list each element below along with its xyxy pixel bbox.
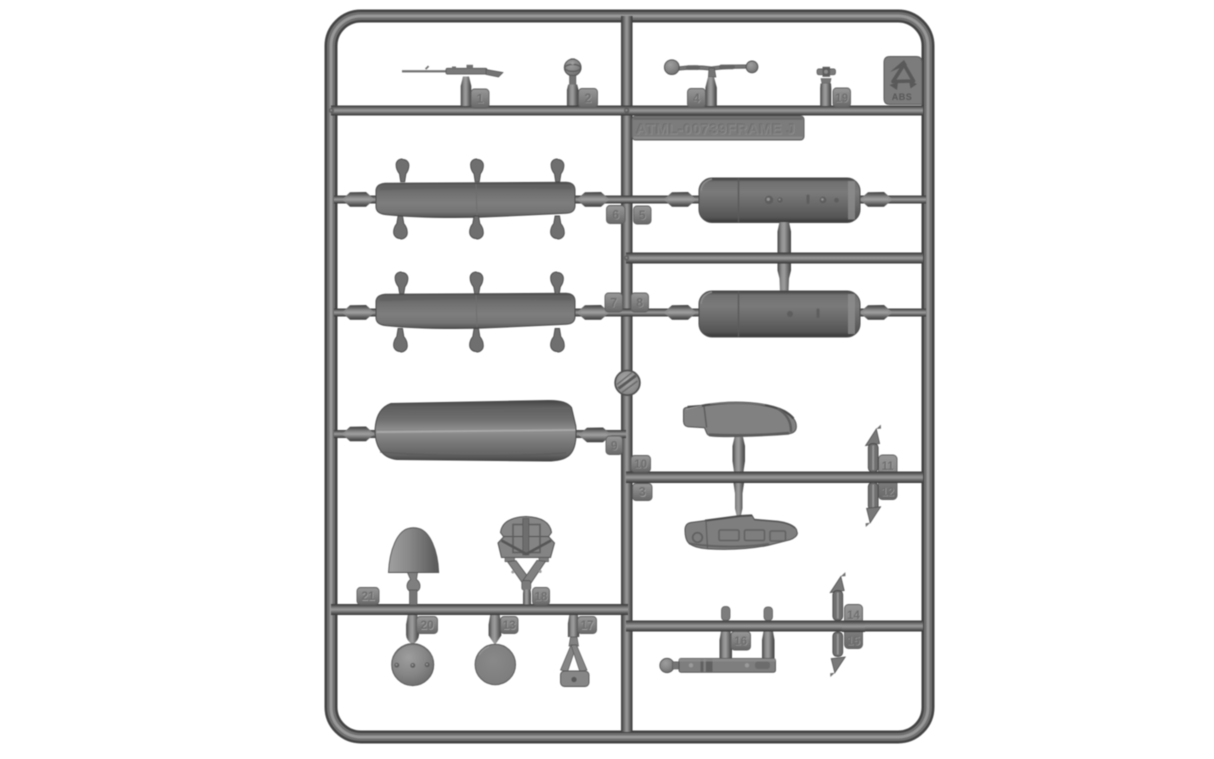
- svg-text:9: 9: [611, 439, 618, 453]
- svg-text:20: 20: [420, 618, 434, 632]
- svg-text:10: 10: [634, 459, 647, 471]
- svg-text:8: 8: [636, 296, 643, 310]
- svg-text:11: 11: [882, 461, 895, 473]
- svg-text:7: 7: [610, 296, 617, 310]
- svg-text:ABS: ABS: [892, 92, 913, 102]
- svg-text:ATML-00739FRAME J: ATML-00739FRAME J: [636, 121, 795, 138]
- svg-text:16: 16: [734, 636, 747, 648]
- svg-text:3: 3: [639, 485, 646, 499]
- svg-text:18: 18: [535, 592, 548, 604]
- svg-text:15: 15: [847, 636, 860, 648]
- svg-text:6: 6: [612, 208, 619, 222]
- svg-text:21: 21: [361, 589, 375, 603]
- svg-text:12: 12: [881, 487, 894, 499]
- svg-text:1: 1: [477, 92, 484, 106]
- svg-text:14: 14: [847, 610, 860, 622]
- svg-text:2: 2: [585, 92, 592, 106]
- svg-text:19: 19: [835, 93, 848, 105]
- svg-text:17: 17: [581, 620, 594, 632]
- svg-text:5: 5: [639, 209, 646, 223]
- svg-text:4: 4: [693, 92, 700, 106]
- svg-text:13: 13: [503, 620, 516, 632]
